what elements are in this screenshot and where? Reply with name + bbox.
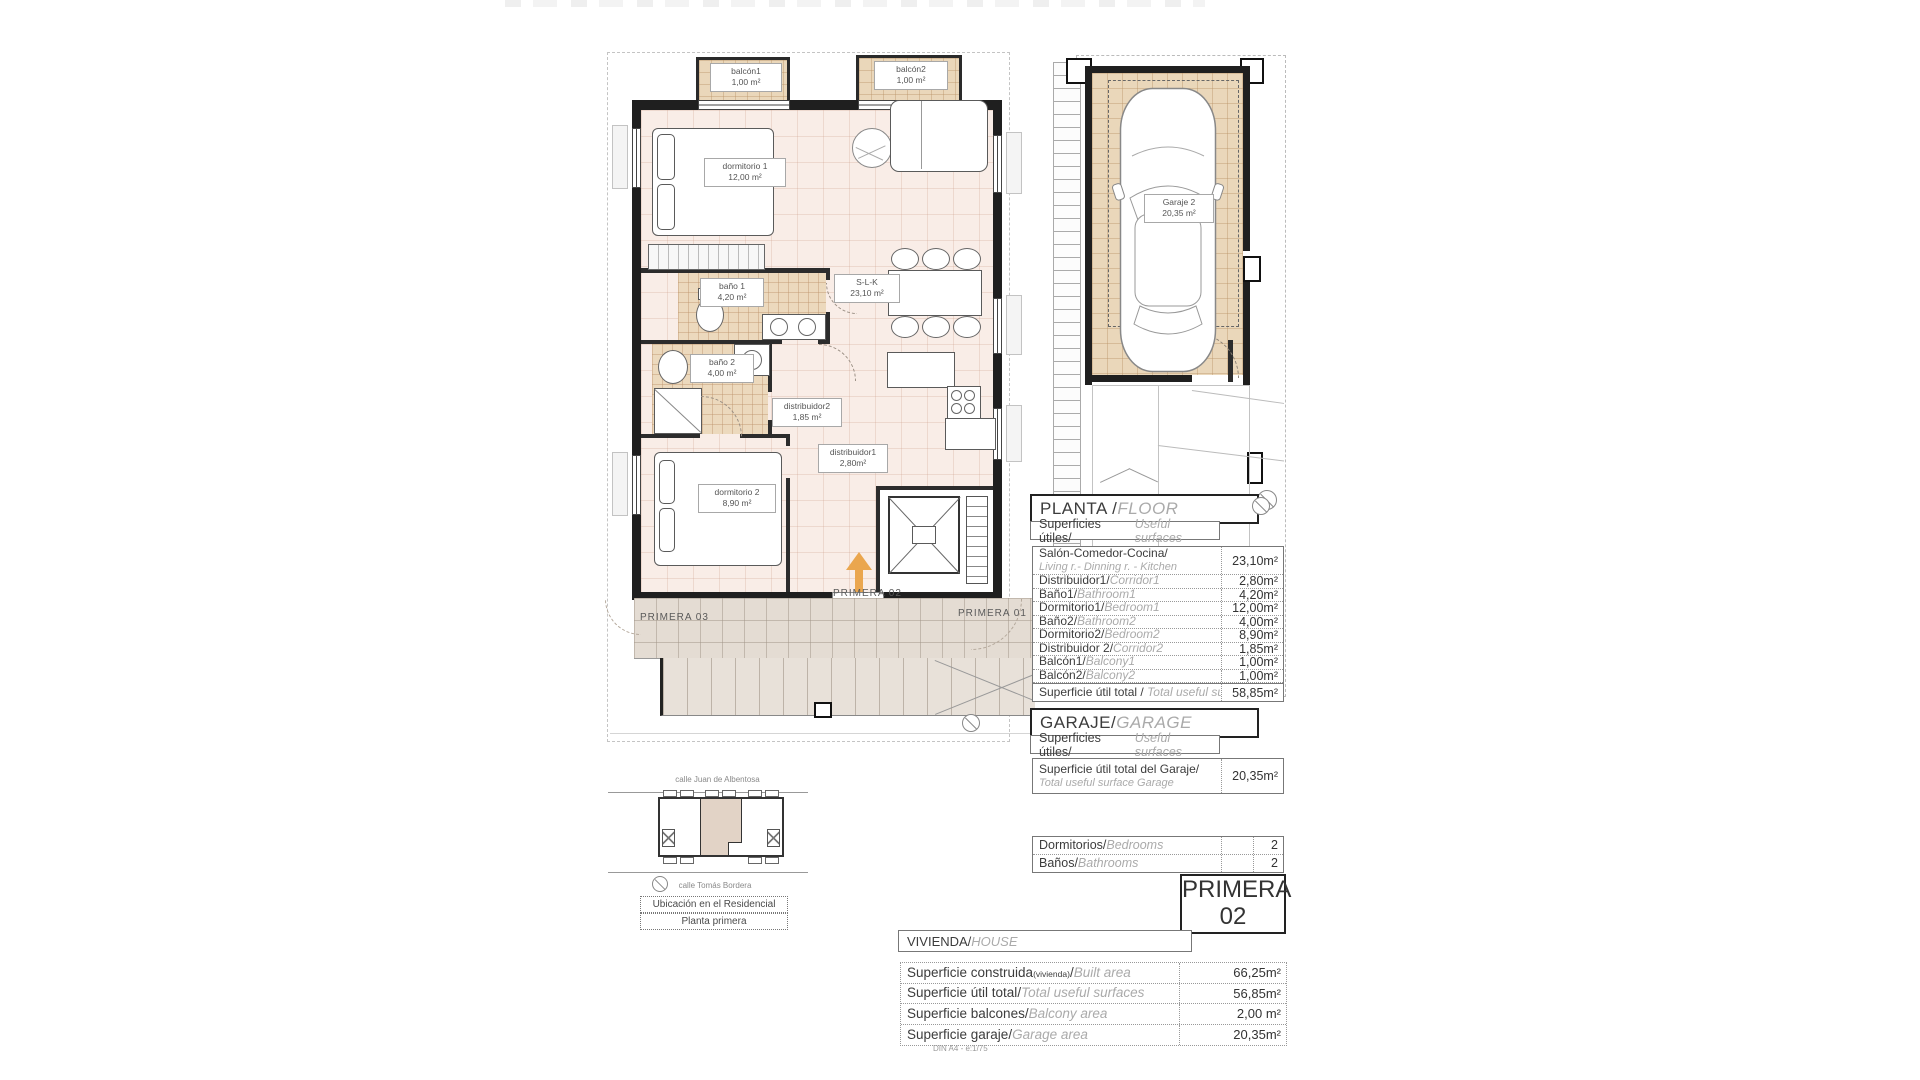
garaje-table-subheader: Superficies útiles/Useful surfaces (1030, 735, 1220, 754)
shutter (1006, 132, 1022, 194)
row-value: 4,00m² (1221, 616, 1283, 629)
table-row: Baños/Bathrooms 2 (1033, 855, 1283, 873)
row-label-es: Salón-Comedor-Cocina/ (1039, 547, 1221, 561)
dining-table (888, 270, 982, 316)
row-value: 56,85m² (1179, 984, 1286, 1004)
row-label-es: Superficie balcones (907, 1006, 1025, 1021)
table-row: Distribuidor1/Corridor1 2,80m² (1033, 575, 1283, 589)
row-label-es: Dormitorio2/ (1039, 628, 1104, 641)
shutter (612, 452, 628, 516)
car (1118, 86, 1218, 374)
pillow (657, 184, 675, 230)
row-label-es: Baño1/ (1039, 588, 1077, 601)
window (632, 128, 641, 188)
row-label-es: Balcón2/ (1039, 669, 1086, 682)
row-label-en: Bathroom2 (1077, 615, 1136, 628)
subheader-es: Superficies útiles/ (1039, 517, 1135, 545)
cropped-header-strip (505, 0, 1205, 7)
room-area: 2,80m² (822, 458, 884, 469)
row-value: 2 (1253, 855, 1283, 873)
row-label-es: Baños/ (1039, 856, 1078, 870)
balcony-1-label: balcón1 1,00 m² (710, 63, 782, 92)
row-label-en: Balcony2 (1086, 669, 1135, 682)
row-value: 1,00m² (1221, 656, 1283, 669)
row-label: Distribuidor1/Corridor1 (1033, 574, 1221, 588)
table-row: Balcón1/Balcony1 1,00m² (1033, 656, 1283, 670)
row-value: 8,90m² (1221, 629, 1283, 642)
row-label-es: Balcón1/ (1039, 655, 1086, 668)
row-value: 1,00m² (1221, 670, 1283, 683)
row-label-es: Baño2/ (1039, 615, 1077, 628)
map-balcony (765, 790, 779, 797)
kitchen-counter (945, 418, 996, 450)
header-en: HOUSE (971, 934, 1017, 949)
street-name-bottom: calle Tomás Bordera (640, 881, 790, 890)
row-label-es: Distribuidor1/ (1039, 574, 1110, 587)
table-row: Superficie garaje/Garage area 20,35m² (901, 1025, 1286, 1046)
window (698, 100, 790, 110)
row-label-sub: (vivienda) (1033, 969, 1070, 979)
unit-badge-line2: 02 (1182, 904, 1284, 930)
table-row: Superficie útil total del Garaje/ Total … (1033, 759, 1283, 793)
row-label: Balcón1/Balcony1 (1033, 655, 1221, 669)
row-value: 23,10m² (1221, 547, 1283, 574)
footer-note: DIN A4 - e:1/75 (933, 1044, 988, 1053)
shutter (1006, 295, 1022, 355)
row-label-en: Corridor2 (1113, 642, 1163, 655)
map-balcony (705, 790, 719, 797)
row-label-en: Bedrooms (1106, 838, 1163, 852)
row-label-en: Bedroom2 (1104, 628, 1159, 641)
room-area: 23,10 m² (838, 288, 896, 299)
row-value: 4,20m² (1221, 589, 1283, 602)
window (993, 298, 1002, 354)
table-total-row: Superficie útil total / Total useful sur… (1033, 683, 1283, 701)
row-label-en: Corridor1 (1110, 574, 1160, 587)
chair (953, 248, 981, 270)
subheader-es: Superficies útiles/ (1039, 731, 1135, 759)
row-label-en: Bedroom1 (1104, 601, 1159, 614)
chair (922, 248, 950, 270)
row-label-en: Garage area (1012, 1027, 1088, 1042)
row-label: Superficie útil total/Total useful surfa… (901, 985, 1179, 1001)
compass-needle (1255, 500, 1267, 512)
room-area: 1,00 m² (714, 77, 778, 88)
row-label-es: Superficie construida (907, 965, 1033, 980)
row-value: 2,00 m² (1179, 1004, 1286, 1024)
burner (964, 390, 975, 401)
unit-notch (728, 842, 742, 855)
floor-plan-sheet: balcón1 1,00 m² balcón2 1,00 m² d (0, 0, 1920, 1080)
room-name: Garaje 2 (1148, 197, 1210, 208)
distribuidor-1-label: distribuidor1 2,80m² (818, 444, 888, 473)
row-label-en: Bathroom1 (1077, 588, 1136, 601)
room-name: dormitorio 1 (708, 161, 782, 172)
stair-core (662, 829, 675, 847)
map-balcony (748, 857, 762, 864)
map-balcony (765, 857, 779, 864)
row-label-es: Superficie útil total (907, 985, 1017, 1000)
wall-segment (818, 340, 830, 344)
map-caption-1: Ubicación en el Residencial (640, 896, 788, 913)
row-label: Dormitorios/Bedrooms (1033, 838, 1221, 852)
chair (953, 316, 981, 338)
row-label-es: Superficie útil total / (1039, 686, 1147, 699)
room-name: distribuidor2 (776, 401, 838, 412)
row-label-en: Balcony area (1029, 1006, 1108, 1021)
row-value: 12,00m² (1221, 602, 1283, 615)
wall-segment (786, 478, 790, 592)
map-balcony (722, 790, 736, 797)
table-row: Dormitorio1/Bedroom1 12,00m² (1033, 602, 1283, 616)
unit-badge-line1: PRIMERA (1182, 876, 1284, 904)
row-label-en: Total useful surfaces (1021, 985, 1144, 1000)
window (993, 135, 1002, 193)
wall-segment (1085, 375, 1192, 382)
bathroom-1-label: baño 1 4,20 m² (700, 278, 764, 307)
table-row: Balcón2/Balcony2 1,00m² (1033, 670, 1283, 684)
room-area: 12,00 m² (708, 172, 782, 183)
sofa-detail (921, 101, 922, 169)
table-row: Baño2/Bathroom2 4,00m² (1033, 616, 1283, 630)
row-label: Superficie útil total del Garaje/ Total … (1033, 763, 1221, 789)
row-label: Superficie construida(vivienda)/Built ar… (901, 965, 1179, 981)
wall-segment (876, 486, 993, 490)
row-label-es: Superficie útil total del Garaje/ (1039, 763, 1221, 777)
sofa (890, 100, 988, 172)
room-area: 20,35 m² (1148, 208, 1210, 219)
room-area: 8,90 m² (702, 498, 772, 509)
vivienda-table: Superficie construida(vivienda)/Built ar… (900, 962, 1287, 1046)
dormitorio-2-label: dormitorio 2 8,90 m² (698, 484, 776, 513)
row-label-en: Total useful surface (1147, 686, 1221, 699)
room-name: S-L-K (838, 277, 896, 288)
wall-segment (826, 312, 830, 340)
row-label: Balcón2/Balcony2 (1033, 669, 1221, 683)
row-value: 1,85m² (1221, 643, 1283, 656)
chair (891, 248, 919, 270)
room-name: balcón2 (878, 64, 944, 75)
residential-block (658, 797, 784, 857)
row-label: Dormitorio1/Bedroom1 (1033, 601, 1221, 615)
table-row: Distribuidor 2/Corridor2 1,85m² (1033, 643, 1283, 657)
map-balcony (748, 790, 762, 797)
header-es: VIVIENDA/ (907, 934, 971, 949)
table-row: Dormitorios/Bedrooms 2 (1033, 837, 1283, 855)
window (632, 455, 641, 515)
wall-segment (740, 434, 790, 438)
pillow (659, 508, 675, 552)
table-row: Superficie útil total/Total useful surfa… (901, 984, 1286, 1005)
pillar (814, 702, 832, 718)
chair (891, 316, 919, 338)
room-area: 1,00 m² (878, 75, 944, 86)
street-line (608, 872, 808, 873)
burner (951, 390, 962, 401)
fence-strip (1053, 62, 1081, 560)
wall-segment (876, 486, 880, 592)
row-value: 66,25m² (1179, 963, 1286, 983)
slk-label: S-L-K 23,10 m² (834, 274, 900, 303)
row-label-en: Living r.- Dinning r. - Kitchen (1039, 561, 1221, 574)
row-value: 2 (1253, 837, 1283, 854)
compass-icon (962, 714, 980, 732)
landing-label-center: PRIMERA 02 (833, 588, 902, 599)
room-area: 4,20 m² (704, 292, 760, 303)
map-caption-2: Planta primera (640, 913, 788, 930)
burner (964, 403, 975, 414)
sink (770, 318, 788, 336)
room-name: dormitorio 2 (702, 487, 772, 498)
shutter (612, 125, 628, 189)
row-label-en: Balcony1 (1086, 655, 1135, 668)
row-label: Salón-Comedor-Cocina/ Living r.- Dinning… (1033, 547, 1221, 573)
map-balcony (663, 790, 677, 797)
row-label: Superficie balcones/Balcony area (901, 1006, 1179, 1022)
room-name: baño 1 (704, 281, 760, 292)
subheader-en: Useful surfaces (1135, 731, 1219, 759)
row-label-en: Bathrooms (1078, 856, 1138, 870)
row-value: 58,85m² (1221, 684, 1283, 701)
map-balcony (663, 857, 677, 864)
row-label-es: Superficie garaje (907, 1027, 1008, 1042)
spacer-cell (1221, 855, 1253, 873)
table-row: Salón-Comedor-Cocina/ Living r.- Dinning… (1033, 547, 1283, 575)
table-row: Superficie balcones/Balcony area 2,00 m² (901, 1004, 1286, 1025)
wall-segment (786, 438, 790, 446)
wall-segment (826, 268, 830, 280)
row-value: 20,35m² (1221, 759, 1283, 793)
row-label: Superficie garaje/Garage area (901, 1027, 1179, 1043)
row-label: Distribuidor 2/Corridor2 (1033, 642, 1221, 656)
dormitorio-1-label: dormitorio 1 12,00 m² (704, 158, 786, 187)
room-name: balcón1 (714, 66, 778, 77)
room-name: distribuidor1 (822, 447, 884, 458)
entrance-arrow-head (846, 552, 872, 570)
row-value: 2,80m² (1221, 575, 1283, 588)
spacer-cell (1221, 837, 1253, 854)
row-label-es: Distribuidor 2/ (1039, 642, 1113, 655)
stairs (966, 496, 988, 584)
garage-label: Garaje 2 20,35 m² (1144, 194, 1214, 223)
unit-badge: PRIMERA 02 (1180, 874, 1286, 934)
row-label-es: Dormitorio1/ (1039, 601, 1104, 614)
stair-core (767, 829, 780, 847)
shutter (1006, 405, 1022, 462)
row-label: Dormitorio2/Bedroom2 (1033, 628, 1221, 642)
row-label-en: Built area (1074, 965, 1131, 980)
wall-segment (641, 434, 700, 438)
row-label: Superficie útil total / Total useful sur… (1033, 686, 1221, 700)
row-label-es: Dormitorios/ (1039, 838, 1106, 852)
row-label: Baños/Bathrooms (1033, 856, 1221, 870)
wall-segment (1085, 66, 1092, 385)
bathroom-2-label: baño 2 4,00 m² (690, 354, 754, 383)
room-name: baño 2 (694, 357, 750, 368)
row-value: 20,35m² (1179, 1025, 1286, 1046)
terrace-steps (660, 658, 1035, 716)
map-balcony (680, 790, 694, 797)
wall-segment (1085, 66, 1250, 73)
sink (798, 318, 816, 336)
pillow (657, 134, 675, 180)
landing-label-left: PRIMERA 03 (640, 612, 709, 623)
row-label: Baño2/Bathroom2 (1033, 615, 1221, 629)
compass-needle (965, 717, 977, 729)
row-label-en: Total useful surface Garage (1039, 777, 1221, 790)
table-row: Baño1/Bathroom1 4,20m² (1033, 589, 1283, 603)
pillar (1243, 256, 1261, 282)
table-row: Dormitorio2/Bedroom2 8,90m² (1033, 629, 1283, 643)
room-area: 4,00 m² (694, 368, 750, 379)
elevator-cab (912, 526, 936, 544)
pillow (659, 460, 675, 504)
subheader-en: Useful surfaces (1135, 517, 1219, 545)
room-area: 1,85 m² (776, 412, 838, 423)
toilet (658, 350, 688, 384)
balcony-2-label: balcón2 1,00 m² (874, 61, 948, 90)
wall-segment (1243, 66, 1250, 251)
wardrobe (648, 244, 765, 270)
map-balcony (680, 857, 694, 864)
landing-label-right: PRIMERA 01 (958, 608, 1027, 619)
planta-table-subheader: Superficies útiles/Useful surfaces (1030, 521, 1220, 540)
wall-segment (1243, 282, 1250, 385)
kitchen-counter (887, 352, 955, 388)
table-row: Superficie construida(vivienda)/Built ar… (901, 963, 1286, 984)
planta-surfaces-table: Salón-Comedor-Cocina/ Living r.- Dinning… (1032, 546, 1284, 702)
chair (922, 316, 950, 338)
compass-icon (1252, 497, 1270, 515)
vivienda-header: VIVIENDA/HOUSE (898, 930, 1192, 952)
row-label: Baño1/Bathroom1 (1033, 588, 1221, 602)
counts-table: Dormitorios/Bedrooms 2 Baños/Bathrooms 2 (1032, 836, 1284, 873)
burner (951, 403, 962, 414)
distribuidor-2-label: distribuidor2 1,85 m² (772, 398, 842, 427)
garaje-surfaces-table: Superficie útil total del Garaje/ Total … (1032, 758, 1284, 794)
street-name-top: calle Juan de Albentosa (640, 775, 795, 784)
